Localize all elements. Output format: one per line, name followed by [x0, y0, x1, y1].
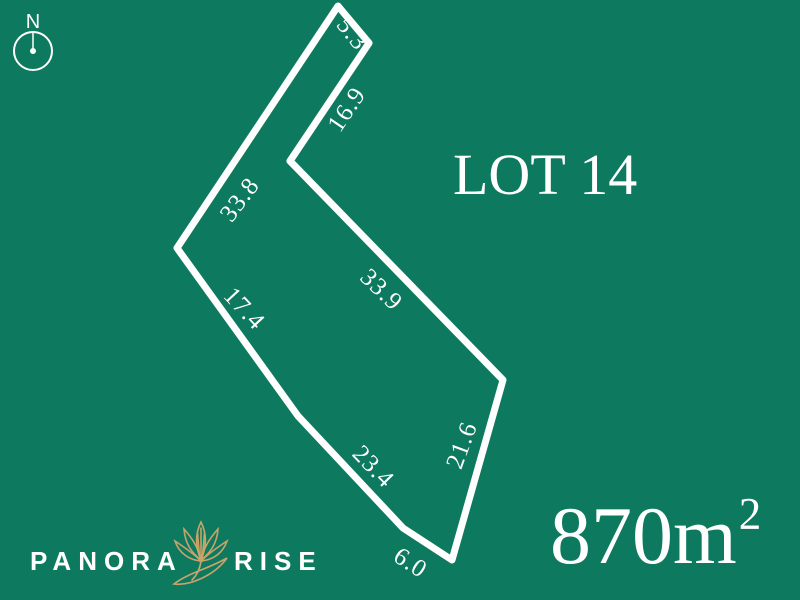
north-label: N: [26, 11, 40, 33]
lot-boundary: [177, 6, 503, 560]
lot-area: 870m2: [550, 492, 761, 577]
brand-name-left: PANORA: [30, 548, 183, 574]
north-arrow: N: [14, 11, 52, 70]
lot-title: LOT 14: [453, 146, 637, 204]
edge-measurements: 5.3 16.9 33.8 33.9 17.4 23.4 21.6 6.0: [215, 12, 483, 584]
brand-name-right: RISE: [234, 548, 323, 574]
measurement-label: 17.4: [218, 282, 270, 335]
area-value: 870m: [550, 490, 737, 581]
area-exponent: 2: [739, 489, 762, 539]
measurement-label: 23.4: [347, 440, 400, 493]
measurement-label: 16.9: [322, 82, 371, 137]
lot-plan-canvas: N 5.3 16.9 33.8 33.9 17.4 23.4 21.6 6.0 …: [0, 0, 800, 600]
compass-center-dot: [30, 48, 36, 54]
lotus-flower-icon: [172, 516, 230, 592]
measurement-label: 6.0: [389, 542, 432, 583]
